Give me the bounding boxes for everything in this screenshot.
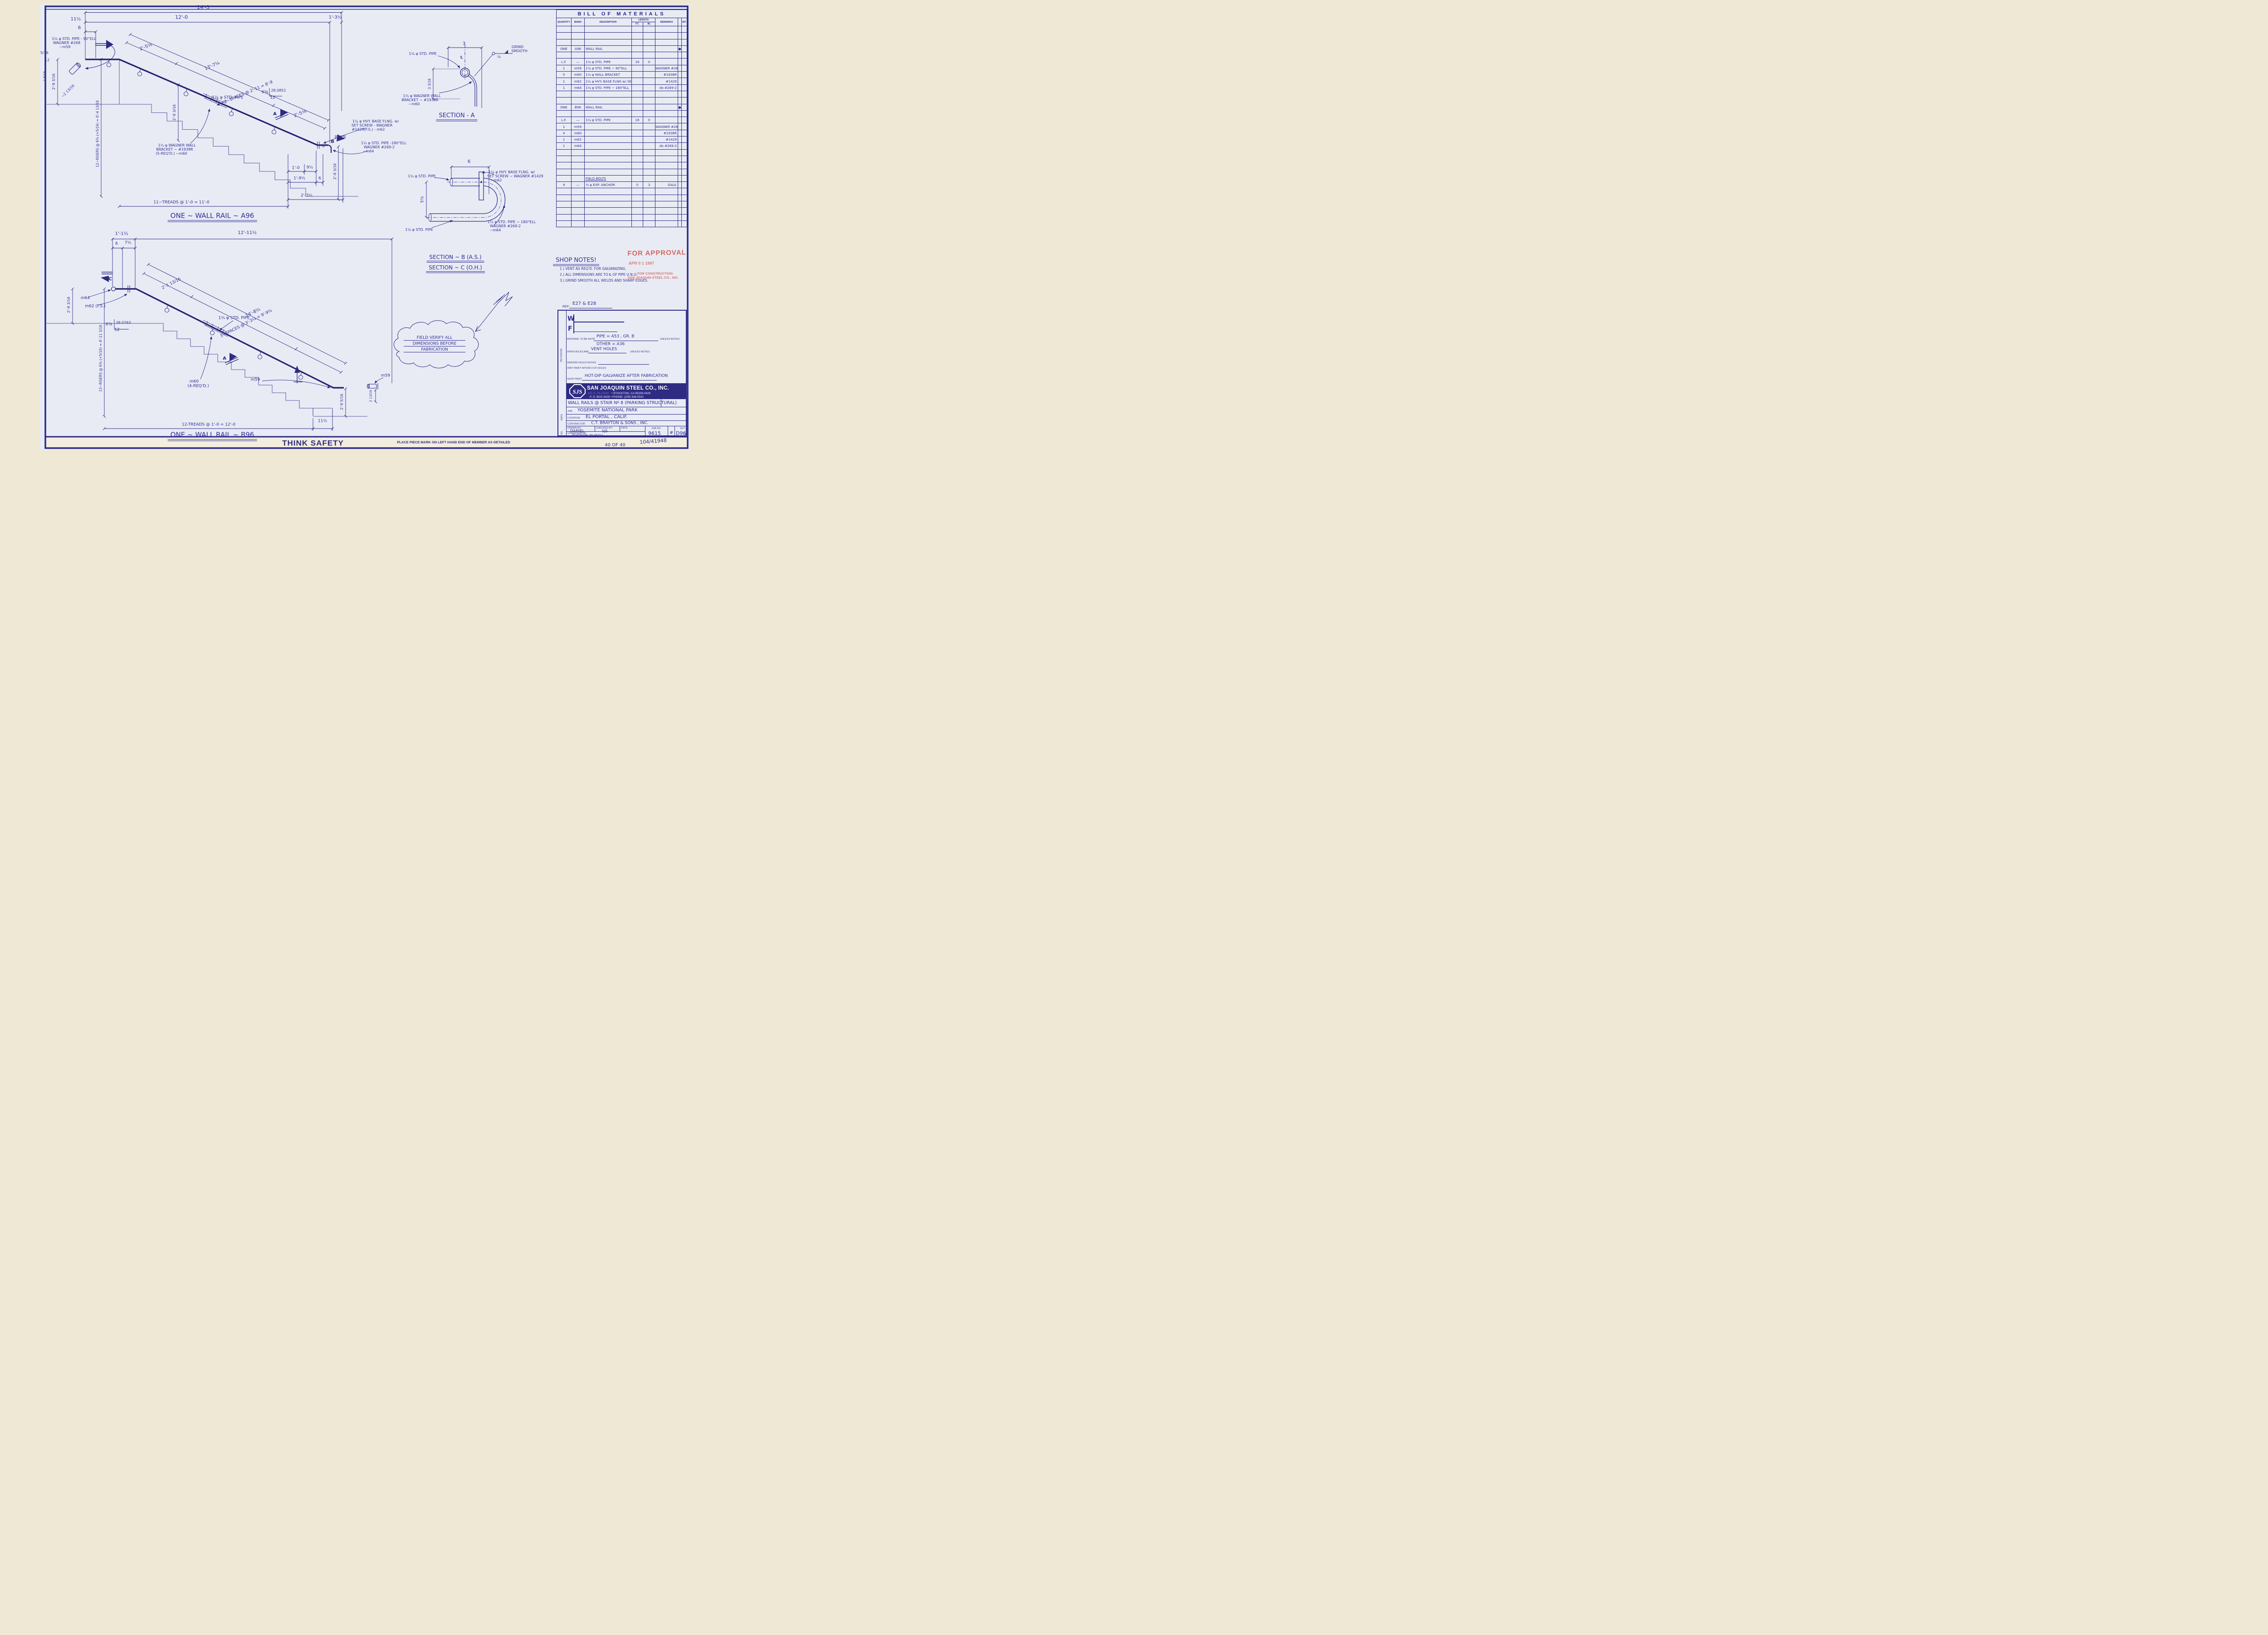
dimension-label: 1¼ φ STD. PIPE [218, 317, 249, 321]
bom-row: ONEB96WALL RAIL● [557, 104, 687, 110]
bom-row: 4m60#1938R [557, 130, 687, 136]
bom-cell [572, 208, 585, 214]
bom-cell [643, 175, 655, 181]
bom-cell [585, 33, 632, 39]
bom-cell: m59 [572, 123, 585, 130]
bom-cell [655, 162, 678, 169]
bom-cell [572, 156, 585, 162]
bom-row [557, 208, 687, 214]
ref-value: E27 & E28 [572, 301, 596, 306]
bom-row: 1m591¼ φ STD. PIPE ~ 90°ELLWAGNER #268 [557, 65, 687, 71]
bom-row [557, 162, 687, 169]
bom-cell: 5 [557, 72, 572, 78]
dimension-label: 2'-3½ [301, 194, 313, 198]
bom-cell: WALL RAIL [585, 104, 632, 110]
bom-cell [572, 195, 585, 201]
bom-cell: L.F. [557, 117, 572, 123]
bom-cell: — [572, 59, 585, 65]
bom-cell: m64 [572, 84, 585, 91]
bom-row: 1m59WAGNER #268 [557, 123, 687, 130]
dimension-label: 2'-1 13/16 [161, 278, 181, 291]
bom-cell [557, 208, 572, 214]
bom-cell [682, 156, 687, 162]
bom-cell [632, 78, 643, 84]
dimension-label: 1'-9½ [293, 177, 305, 181]
left-margin [0, 0, 40, 454]
svg-text:SJS: SJS [573, 388, 582, 395]
bom-row [557, 201, 687, 208]
bom-cell [632, 33, 643, 39]
bom-cell [585, 149, 632, 156]
dimension-label: 6⅜ [106, 323, 112, 327]
dimension-label: 12 [270, 96, 275, 100]
date-side-label: DATE [561, 414, 563, 420]
job-no-hash: # [670, 430, 673, 435]
dimension-label: BRACKET ~ #1938R [401, 98, 438, 102]
bom-cell [585, 52, 632, 59]
bom-row: ONEA96WALL RAIL● [557, 45, 687, 52]
dimension-label: 1¼ φ STD. PIPE - 90°ELL [52, 37, 96, 41]
company-address1: • STOCKTON, CA 95208-0426 [611, 392, 650, 395]
bom-cell [682, 137, 687, 143]
bom-cell: 1¼ φ WALL BRACKET [585, 72, 632, 78]
revision-triangle: △ [684, 431, 686, 435]
dimension-label: 6 [468, 160, 470, 164]
dimension-label: 3 3/16 [428, 78, 431, 89]
bom-cell: 1¼ φ STD. PIPE [585, 59, 632, 65]
bom-cell [585, 130, 632, 136]
shop-paint-label: SHOP PAINT [567, 378, 582, 381]
dimension-label: 11½ [71, 17, 81, 22]
bom-cell [632, 110, 643, 117]
bom-cell [585, 156, 632, 162]
bom-cell [585, 91, 632, 97]
bom-cell [655, 117, 678, 123]
bom-cell [632, 188, 643, 195]
piece-mark-note: PLACE PIECE MARK ON LEFT HAND END OF MEM… [397, 440, 510, 444]
bom-cell: — [572, 117, 585, 123]
field-symbol-f: F [568, 325, 572, 332]
bom-row [557, 149, 687, 156]
bom-cell: m62 [572, 137, 585, 143]
bom-cell [655, 39, 678, 45]
dimension-label: 40 OF 40 [605, 443, 625, 448]
dimension-label: 2'-9 3/16 [52, 73, 56, 90]
dimension-label: 6 [115, 242, 118, 246]
b96-drawing-title: ONE ~ WALL RAIL ~ B96 [168, 432, 257, 441]
bom-cell [678, 39, 682, 45]
dimension-label: 14'-3 [197, 5, 210, 10]
bom-cell [678, 84, 682, 91]
bom-cell [572, 110, 585, 117]
bom-cell [572, 33, 585, 39]
ref-label: REF: [562, 305, 570, 308]
dimension-label: 1¼ φ HVY. BASE FLNG. w/ [352, 120, 399, 123]
bom-cell [643, 45, 655, 52]
bom-cell [655, 220, 678, 227]
bom-cell: 1 [557, 78, 572, 84]
dimension-label: 5⅝ [421, 196, 425, 203]
bom-cell [643, 52, 655, 59]
bom-cell [632, 214, 643, 220]
bom-cell [632, 169, 643, 175]
bom-cell [682, 33, 687, 39]
bom-cell [572, 26, 585, 33]
bom-title: BILL OF MATERIALS [557, 10, 687, 18]
bom-row: FIELD BOLTS [557, 175, 687, 181]
bom-cell: ⅜ φ EXP. ANCHOR [585, 182, 632, 188]
field-verify-cloud-note: FIELD VERIFY ALLDIMENSIONS BEFOREFABRICA… [402, 335, 467, 353]
bom-cell [585, 162, 632, 169]
dimension-label: 6 [78, 26, 81, 30]
bom-cell [682, 143, 687, 149]
bom-cell [632, 208, 643, 214]
dimension-label: 1¼ φ STD. PIPE [212, 96, 243, 100]
bom-cell [682, 130, 687, 136]
bom-row [557, 52, 687, 59]
bom-cell [655, 195, 678, 201]
bom-cell [682, 220, 687, 227]
bom-cell [643, 214, 655, 220]
bom-cell: 4 [557, 130, 572, 136]
bom-cell [632, 149, 643, 156]
date-label: DATE: [621, 427, 628, 429]
bom-cell [572, 52, 585, 59]
bom-cell [678, 59, 682, 65]
bom-cell [678, 110, 682, 117]
bom-header-ft: FT. [632, 22, 643, 26]
bom-cell [557, 149, 572, 156]
bom-cell [682, 201, 687, 208]
bom-cell [643, 39, 655, 45]
bom-cell [557, 33, 572, 39]
bom-cell [678, 214, 682, 220]
bom-row [557, 188, 687, 195]
unless-noted-1: UNLESS NOTED. [660, 338, 680, 341]
bom-cell [557, 91, 572, 97]
bom-cell [557, 39, 572, 45]
bom-cell [682, 117, 687, 123]
dimension-label: 3 [463, 42, 465, 46]
dimension-label: ~m62 [491, 179, 502, 182]
bom-cell [632, 195, 643, 201]
bom-cell [678, 33, 682, 39]
bom-cell [655, 208, 678, 214]
bom-cell: A96 [572, 45, 585, 52]
bom-cell [655, 45, 678, 52]
bom-header-dot-col [678, 18, 682, 26]
bom-cell [643, 110, 655, 117]
dimension-label: ~2 13/16 [61, 84, 75, 98]
bom-cell [643, 104, 655, 110]
bom-cell [572, 98, 585, 104]
bom-cell [682, 98, 687, 104]
bom-cell: #1938R [655, 130, 678, 136]
bom-cell: do #269-2 [655, 143, 678, 149]
dimension-label: #1429(F.S.) - m62 [352, 128, 385, 132]
section-c-title: SECTION ~ C (O.H.) [426, 265, 485, 273]
bom-cell [572, 201, 585, 208]
bom-cell [682, 195, 687, 201]
material-label: MATERIAL TO BE ASTM [567, 338, 595, 341]
dimension-label: B [331, 140, 334, 144]
bom-cell [682, 110, 687, 117]
bom-cell [643, 72, 655, 78]
dimension-label: m64 [81, 297, 90, 301]
bom-cell [632, 175, 643, 181]
dimension-label: 12-TREADS @ 1'-0 = 12'-0 [182, 423, 235, 427]
bill-of-materials: BILL OF MATERIALS QUANTITY MARK DESCRIPT… [556, 10, 687, 227]
bom-cell: ● [678, 45, 682, 52]
dimension-label: 2'-5⅛ [139, 43, 153, 52]
bom-cell [678, 65, 682, 71]
bom-cell [632, 52, 643, 59]
bom-cell [678, 175, 682, 181]
bom-cell [655, 201, 678, 208]
dimension-label: 13'-7¼ [204, 61, 220, 72]
dimension-label: ~m60 [409, 102, 420, 106]
bom-cell [655, 26, 678, 33]
bom-header-quantity: QUANTITY [557, 18, 572, 26]
bom-cell [643, 149, 655, 156]
bom-row [557, 214, 687, 220]
bom-cell: 1 [557, 137, 572, 143]
bom-cell: 9 [557, 182, 572, 188]
title-block: REVISIONS DATE NO. W F MATERIAL TO BE AS… [557, 310, 687, 436]
bom-cell [682, 65, 687, 71]
bom-cell: 1¼ φ STD. PIPE [585, 117, 632, 123]
bom-cell [682, 188, 687, 195]
bom-cell [678, 117, 682, 123]
job-label: JOB [567, 410, 572, 413]
bom-cell: 1 [557, 65, 572, 71]
dimension-label: 2'-9 3/16 [67, 297, 71, 313]
dimension-label: 2 13/16 [370, 390, 373, 402]
bom-cell [678, 143, 682, 149]
bom-cell: m60 [572, 130, 585, 136]
dimension-label: 12~RISERS @ 6⅜ (+5/16) = 6'-4 13/16 [96, 100, 99, 167]
bom-cell [632, 156, 643, 162]
bom-cell [678, 91, 682, 97]
bom-cell [678, 98, 682, 104]
bom-cell [655, 214, 678, 220]
dimension-label: WAGNER #268 [53, 41, 80, 45]
dimension-label: 6 [318, 177, 321, 181]
bom-cell [643, 220, 655, 227]
bom-cell [557, 214, 572, 220]
bom-cell [655, 33, 678, 39]
bom-cell [682, 182, 687, 188]
bom-row [557, 156, 687, 162]
dimension-label: 1'-0 [292, 166, 299, 171]
bom-cell [682, 123, 687, 130]
bom-cell: 16 [632, 59, 643, 65]
bom-cell: WAGNER #268 [655, 65, 678, 71]
bom-cell: #1429 [655, 78, 678, 84]
dimension-label: 13~RISERS @ 6⅜ (+5/16) = 6'-11 3/16 [99, 325, 103, 392]
bom-cell [682, 149, 687, 156]
no-side-label: NO. [561, 430, 563, 435]
bom-cell: 16 [632, 117, 643, 123]
bom-cell [585, 98, 632, 104]
bom-row: 1m621¼ φ HVY. BASE FLNG w/ SET SCREW#142… [557, 78, 687, 84]
bom-cell [655, 59, 678, 65]
bom-cell: 0 [643, 117, 655, 123]
bom-cell [572, 175, 585, 181]
bom-cell: #1429 [655, 137, 678, 143]
bom-cell [655, 104, 678, 110]
dimension-label: WAGNER #269-2 [490, 225, 521, 228]
bom-cell [557, 26, 572, 33]
bom-cell [557, 188, 572, 195]
bom-row [557, 26, 687, 33]
bom-cell [678, 208, 682, 214]
dimension-label: ~m64 [490, 229, 501, 232]
checked-by-value: SJS [602, 429, 608, 433]
job-no-value: 9615 [648, 430, 661, 436]
location-value: EL PORTAL , CALIF. [586, 415, 627, 420]
bom-cell [632, 26, 643, 33]
dimension-label: m59 [251, 378, 260, 382]
dimension-label: C [108, 277, 112, 282]
dimension-label: (5-REQ'D.) ~m60 [156, 152, 187, 156]
bom-cell [682, 39, 687, 45]
bom-cell [572, 169, 585, 175]
company-name: SAN JOAQUIN STEEL CO., INC. [587, 386, 669, 391]
bom-cell [682, 91, 687, 97]
company-banner: SJS SAN JOAQUIN STEEL CO., INC. 841 S. P… [566, 383, 686, 399]
bom-cell [643, 130, 655, 136]
location-label: LOCATION [567, 417, 580, 420]
bom-cell [682, 72, 687, 78]
cloud-note-line: FIELD VERIFY ALL [404, 336, 465, 341]
bom-cell [643, 123, 655, 130]
bom-row [557, 98, 687, 104]
bom-cell [557, 156, 572, 162]
bom-row: 5m601¼ φ WALL BRACKET#1938R [557, 72, 687, 78]
sheet-label: SHT [680, 427, 685, 430]
bom-cell [643, 65, 655, 71]
bom-cell [643, 78, 655, 84]
bom-cell: m60 [572, 72, 585, 78]
dimension-label: ℄ [460, 56, 463, 60]
open-holes-label: OPEN HOLES ARE [567, 351, 589, 353]
bom-cell [643, 98, 655, 104]
bom-cell [682, 214, 687, 220]
dimension-label: 2'-9 5/16 [340, 394, 344, 410]
dimension-label: SET SCREW ~ WAGNER #1429 [487, 175, 543, 178]
bom-cell [678, 188, 682, 195]
dimension-label: 12 [45, 59, 49, 62]
bom-cell: 0 [632, 182, 643, 188]
bom-cell [632, 84, 643, 91]
dimension-label: A [273, 112, 277, 117]
bom-header-description: DESCRIPTION [585, 18, 632, 26]
bom-cell [678, 220, 682, 227]
bom-cell [557, 195, 572, 201]
bom-cell [678, 123, 682, 130]
bom-cell [655, 156, 678, 162]
bom-cell [643, 137, 655, 143]
bom-cell: 0 [643, 59, 655, 65]
bom-cell [572, 149, 585, 156]
dimension-label: 1¼ φ WAGNER WALL [158, 144, 196, 147]
bom-cell [572, 214, 585, 220]
bom-cell [585, 143, 632, 149]
bom-cell [678, 72, 682, 78]
bom-cell [585, 110, 632, 117]
dimension-label: 1¼ φ STD. PIPE [405, 228, 433, 232]
bom-row: 1m641¼ φ STD. PIPE ~ 180°ELLdo #269-2 [557, 84, 687, 91]
bom-cell [655, 149, 678, 156]
bom-cell [678, 130, 682, 136]
dimension-label: 2'-9 3/16 [333, 163, 337, 180]
bom-cell: ONE [557, 45, 572, 52]
bom-header-mark: MARK [572, 18, 585, 26]
bom-cell [632, 65, 643, 71]
dimension-label: SET SCREW - WAGNER [352, 124, 392, 127]
bom-cell [682, 59, 687, 65]
sjs-octagon-logo: SJS [569, 384, 586, 399]
bom-cell [557, 110, 572, 117]
dimension-label: 1 5/16 [44, 71, 47, 81]
bom-cell [682, 84, 687, 91]
bom-cell [643, 208, 655, 214]
right-margin [689, 0, 701, 454]
bom-cell [682, 52, 687, 59]
bom-cell [678, 201, 682, 208]
drawing-title: WALL RAILS @ STAIR Nº 8 (PARKING STRUCTU… [568, 400, 677, 405]
cloud-note-line: DIMENSIONS BEFORE [404, 342, 465, 347]
bom-cell: m64 [572, 143, 585, 149]
dimension-label: 11~TREADS @ 1'-0 = 11'-0 [153, 201, 209, 205]
bom-cell [572, 91, 585, 97]
dimension-label: 1¼ φ STD. PIPE [408, 175, 435, 178]
bom-cell [655, 110, 678, 117]
bom-cell [678, 162, 682, 169]
cloud-note-line: FABRICATION [404, 347, 465, 352]
contractor-label: CONTRACTOR [567, 423, 585, 425]
bom-cell: m59 [572, 65, 585, 71]
shop-note-item: 3.) GRIND SMOOTH ALL WELDS AND SHARP EDG… [560, 278, 664, 283]
bom-cell [682, 175, 687, 181]
bom-cell [682, 169, 687, 175]
bom-header-length: LENGTH [632, 18, 655, 22]
bom-cell [572, 162, 585, 169]
bom-cell: 1 [557, 143, 572, 149]
bom-cell [557, 98, 572, 104]
bom-cell [678, 78, 682, 84]
dimension-label: 12'-11½ [238, 231, 257, 235]
shop-note-item: 1.) VENT AS REQ'D. FOR GALVANIZING. [560, 267, 664, 271]
bom-cell [632, 104, 643, 110]
bom-row: 1m62#1429 [557, 137, 687, 143]
bom-cell [632, 123, 643, 130]
dimension-label: GRIND [512, 45, 523, 49]
dimension-label: 28.0763 [116, 321, 131, 325]
bom-cell [655, 169, 678, 175]
dimension-label: 12'-0 [175, 15, 188, 20]
bom-cell [585, 208, 632, 214]
dimension-label: m59 [381, 374, 390, 378]
material-value-other: OTHER = A36 [596, 342, 625, 347]
dimension-label: (4-REQ'D.) [187, 385, 209, 389]
bom-cell [585, 195, 632, 201]
bom-cell [585, 214, 632, 220]
bom-cell [585, 123, 632, 130]
date-stamp: APR 0 1 1997 [629, 262, 655, 266]
dimension-label: 1¼ φ STD. PIPE ~ 180°ELL [488, 220, 536, 224]
